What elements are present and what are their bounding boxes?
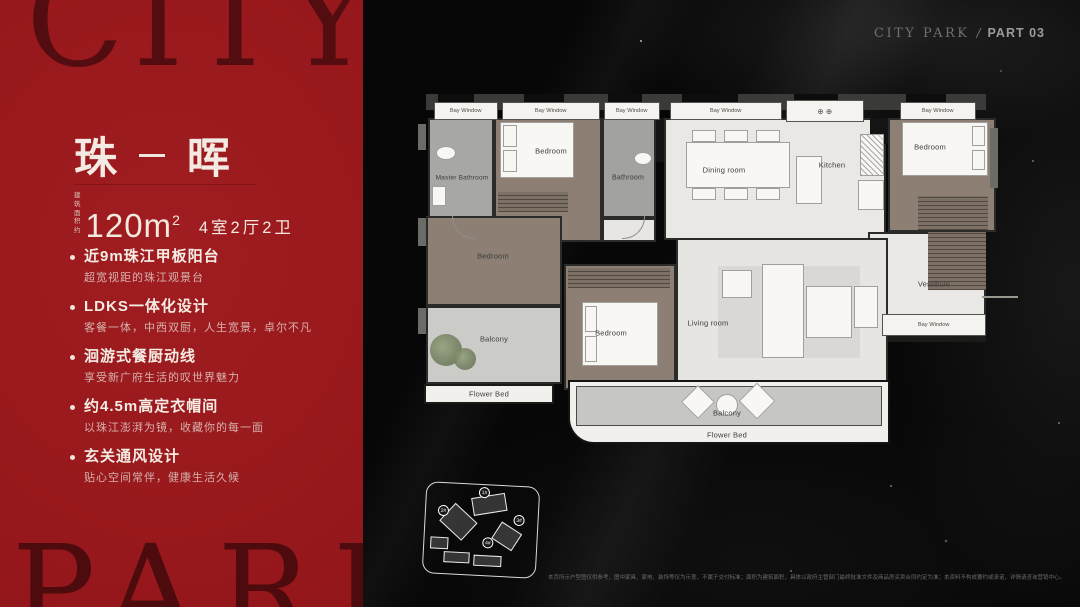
wall-nub [418, 308, 426, 334]
floor-plan: Bay Window Bay Window Bay Window Bay Win… [424, 88, 999, 448]
wardrobe-hatch [568, 268, 670, 288]
building-footprint [471, 493, 507, 516]
dining-chair [724, 188, 748, 200]
toilet-icon [436, 146, 456, 160]
feature-title: 玄关通风设计 [84, 448, 180, 466]
feature-title-row: LDKS一体化设计 [70, 298, 350, 316]
building-marker: 3# [513, 515, 525, 527]
label-vestibule: Vestibule [918, 280, 950, 289]
area-superscript: 2 [172, 212, 181, 228]
site-plan-sketch: 1# 2# 3# 4# [422, 481, 541, 579]
wall-nub [990, 128, 998, 188]
label-balcony: Balcony [713, 409, 741, 418]
building-footprint [473, 555, 502, 567]
disclaimer-text: 本页所示户型图仅供参考，图中家具、家电、装饰等仅为示意，不属于交付标准；面积为建… [548, 573, 1070, 581]
bay-window: Bay Window [670, 102, 782, 120]
feature-title-row: 玄关通风设计 [70, 448, 350, 466]
label-bedroom: Bedroom [595, 329, 627, 338]
feature-title-row: 洄游式餐厨动线 [70, 348, 350, 366]
pillow [972, 150, 985, 170]
bullet-icon [70, 355, 75, 360]
wall-nub [418, 124, 426, 150]
wardrobe-hatch [498, 192, 568, 212]
feature-title: LDKS一体化设计 [84, 298, 209, 316]
wardrobe-hatch [918, 196, 988, 230]
stove [860, 134, 884, 176]
bay-window: Bay Window [434, 102, 498, 120]
unit-title: 珠 晖 [74, 124, 230, 186]
brand-divider: / [976, 26, 980, 40]
feature-item: 近9m珠江甲板阳台 超宽视距的珠江观景台 [70, 248, 350, 285]
dining-chair [692, 188, 716, 200]
label-balcony: Balcony [480, 335, 508, 344]
label-flower-bed: Flower Bed [707, 431, 747, 440]
bullet-icon [70, 255, 75, 260]
label-kitchen: Kitchen [819, 161, 845, 170]
area-prefix: 建筑 面积约 [74, 192, 81, 236]
sofa [806, 286, 852, 338]
tv-cabinet [854, 286, 878, 328]
feature-title-row: 约4.5m高定衣帽间 [70, 398, 350, 416]
feature-item: 洄游式餐厨动线 享受新广府生活的叹世界魅力 [70, 348, 350, 385]
sofa [762, 264, 804, 358]
label-bedroom: Bedroom [535, 147, 567, 156]
dining-chair [724, 130, 748, 142]
feature-item: 约4.5m高定衣帽间 以珠江澎湃为镜，收藏你的每一面 [70, 398, 350, 435]
area-block: 建筑 面积约 120m2 4室2厅2卫 [74, 184, 256, 240]
area-prefix-line2: 面积约 [74, 210, 81, 236]
label-bathroom: Bathroom [612, 175, 644, 182]
bay-window: Bay Window [900, 102, 976, 120]
pillow [503, 150, 517, 172]
watermark-park: PARK [12, 529, 363, 607]
label-master-bathroom: Master Bathroom [436, 175, 489, 182]
feature-desc: 超宽视距的珠江观景台 [84, 271, 350, 285]
washbasin [432, 186, 446, 206]
area-number: 120m [86, 207, 173, 244]
bullet-icon [70, 455, 75, 460]
wall-nub [418, 218, 426, 246]
area-prefix-line1: 建筑 [74, 192, 81, 210]
kitchen-sink-counter: ⊕ ⊕ [786, 100, 864, 122]
dining-chair [756, 130, 780, 142]
feature-desc: 客餐一体，中西双厨，人生宽景，卓尔不凡 [84, 321, 350, 335]
fridge [858, 180, 884, 210]
feature-desc: 享受新广府生活的叹世界魅力 [84, 371, 350, 385]
feature-title-row: 近9m珠江甲板阳台 [70, 248, 350, 266]
dash-divider [139, 154, 165, 157]
feature-title: 近9m珠江甲板阳台 [84, 248, 220, 266]
area-value: 120m2 [86, 212, 181, 240]
feature-desc: 以珠江澎湃为镜，收藏你的每一面 [84, 421, 350, 435]
header-brand: CITY PARK / PART 03 [874, 26, 1045, 41]
building-footprint [430, 536, 449, 549]
bay-window: Bay Window [882, 314, 986, 336]
tree [454, 348, 476, 370]
room-layout-text: 4室2厅2卫 [199, 214, 294, 238]
pillow [503, 125, 517, 147]
left-panel: CITY PARK 珠 晖 建筑 面积约 120m2 4室2厅2卫 近9m珠江甲… [0, 0, 363, 607]
building-marker: 4# [482, 537, 494, 549]
bullet-icon [70, 305, 75, 310]
bullet-icon [70, 405, 75, 410]
pillow [972, 126, 985, 146]
building-footprint [443, 551, 470, 563]
bay-window: Bay Window [604, 102, 660, 120]
wall-segment [882, 336, 986, 342]
label-living-room: Living room [688, 319, 729, 328]
unit-name-second: 晖 [187, 124, 230, 186]
bay-window: Bay Window [502, 102, 600, 120]
pillow [585, 336, 597, 362]
feature-title: 洄游式餐厨动线 [84, 348, 196, 366]
poster: CITY PARK 珠 晖 建筑 面积约 120m2 4室2厅2卫 近9m珠江甲… [0, 0, 1080, 607]
feature-list: 近9m珠江甲板阳台 超宽视距的珠江观景台 LDKS一体化设计 客餐一体，中西双厨… [70, 248, 350, 498]
dining-chair [756, 188, 780, 200]
feature-item: LDKS一体化设计 客餐一体，中西双厨，人生宽景，卓尔不凡 [70, 298, 350, 335]
dining-chair [692, 130, 716, 142]
brand-name: CITY PARK [874, 26, 969, 41]
part-number: PART 03 [988, 26, 1045, 40]
label-bedroom: Bedroom [914, 143, 946, 152]
room-bedroom-left [426, 216, 562, 306]
toilet-icon [634, 152, 652, 165]
feature-title: 约4.5m高定衣帽间 [84, 398, 218, 416]
armchair [722, 270, 752, 298]
label-bedroom: Bedroom [477, 252, 509, 261]
feature-item: 玄关通风设计 贴心空间常伴，健康生活久候 [70, 448, 350, 485]
watermark-city: CITY [26, 0, 363, 86]
unit-name-first: 珠 [74, 124, 117, 186]
room-bathroom [602, 118, 656, 218]
feature-desc: 贴心空间常伴，健康生活久候 [84, 471, 350, 485]
entry-line [982, 296, 1018, 298]
label-dining-room: Dining room [703, 166, 746, 175]
star-specks [640, 40, 642, 42]
label-flower-bed: Flower Bed [469, 390, 509, 399]
